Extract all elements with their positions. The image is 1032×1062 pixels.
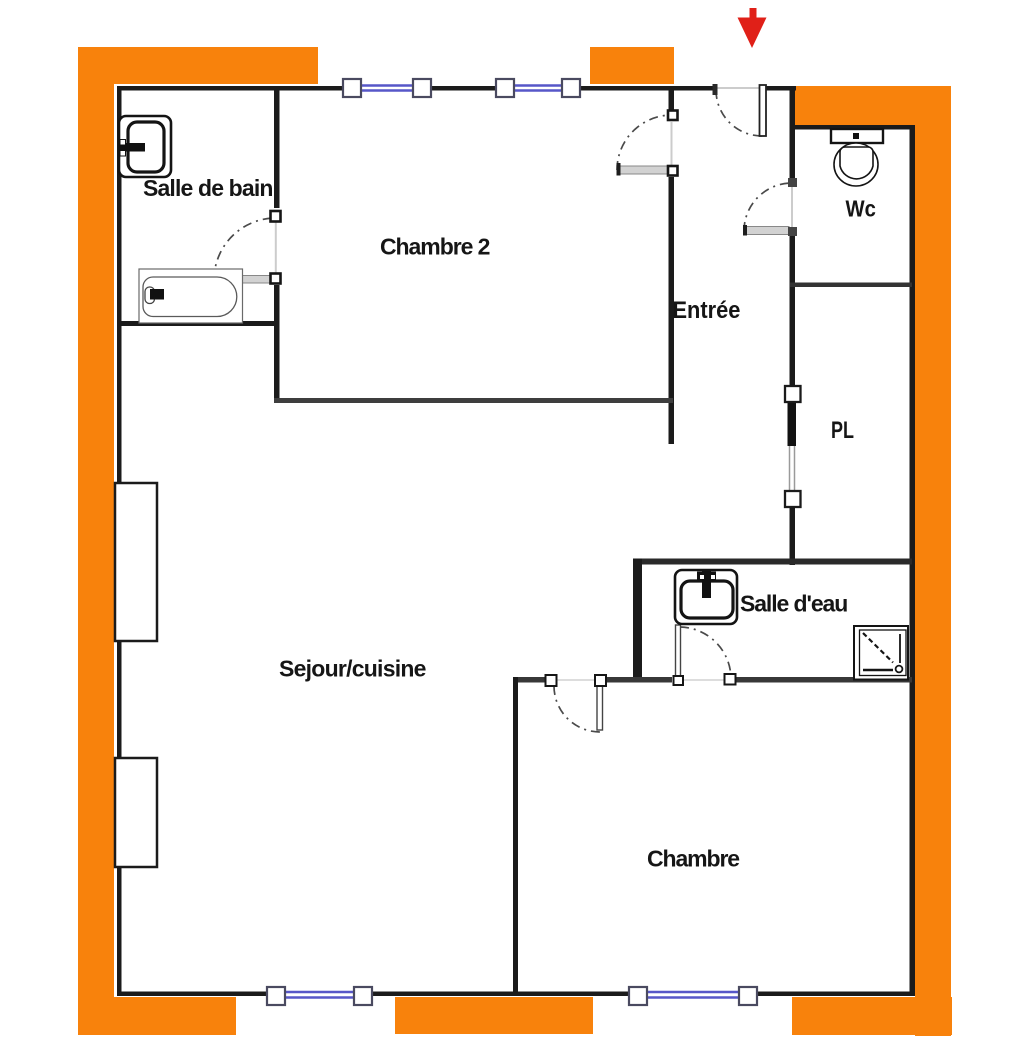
svg-text:Entrée: Entrée — [673, 296, 741, 323]
svg-text:Chambre: Chambre — [647, 846, 739, 872]
svg-text:Salle de bain: Salle de bain — [143, 175, 273, 201]
svg-text:Wc: Wc — [846, 195, 876, 222]
svg-text:Salle d'eau: Salle d'eau — [740, 591, 847, 617]
svg-text:Sejour/cuisine: Sejour/cuisine — [279, 656, 426, 682]
svg-text:Chambre 2: Chambre 2 — [380, 234, 490, 260]
svg-text:PL: PL — [831, 418, 854, 444]
